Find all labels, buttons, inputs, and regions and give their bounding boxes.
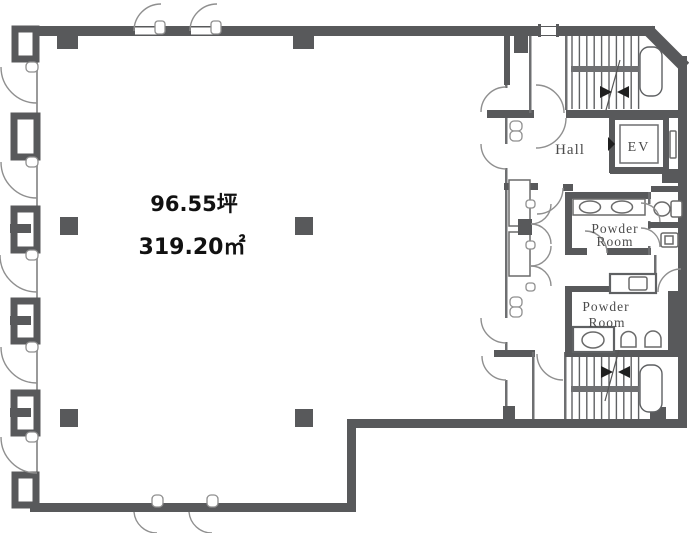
powder-room-lower-label-line1: Powder [582, 299, 629, 314]
door-pivot [26, 157, 38, 167]
door-swing-arc [134, 512, 157, 533]
bottom-facade-doors [134, 495, 218, 533]
wall-pilaster [518, 219, 532, 235]
vestibule-wall [494, 350, 535, 357]
door-pivot [526, 283, 535, 291]
hall-north-wall [487, 110, 534, 118]
door-opening [502, 356, 510, 380]
wall-pilaster [662, 169, 687, 183]
toilet-tank [671, 201, 682, 217]
window-tick [556, 24, 559, 37]
door-pivot [26, 432, 38, 442]
door-pivot [526, 241, 535, 249]
toilet-fixture-inner [665, 236, 673, 244]
corridor-wall [529, 36, 532, 113]
hall-label: Hall [555, 142, 585, 158]
door-pivot [26, 250, 38, 260]
column [60, 409, 78, 427]
counter-sink [629, 277, 647, 290]
wall-segment [503, 406, 515, 423]
area-label-tsubo: 96.55坪 [150, 192, 237, 216]
floor-plan-drawing: 96.55坪 319.20㎡ Hall EV Powder Room Powde… [0, 0, 689, 533]
powder-room-lower-label-line2: Room [588, 315, 625, 330]
area-label-sqm: 319.20㎡ [139, 234, 246, 260]
door-opening [502, 144, 510, 168]
top-window-opening [540, 27, 558, 35]
wall-pilaster [514, 36, 528, 53]
door-swing-arc [189, 512, 212, 533]
wall-segment [565, 286, 572, 355]
duct [670, 131, 676, 158]
facade-bay [15, 475, 36, 505]
outer-wall-top [30, 26, 655, 36]
door-pivot [155, 21, 165, 34]
urinal [621, 332, 636, 348]
door-swing-arc [641, 228, 660, 247]
wall-pilaster [293, 36, 314, 49]
outer-wall-notch [347, 419, 356, 512]
door-pivot [152, 495, 163, 507]
upper-staircase [571, 36, 662, 110]
wall-segment [651, 186, 687, 192]
door-pivot [510, 131, 522, 141]
door-swing-arc [658, 269, 681, 292]
stair-arrow-down [617, 86, 629, 98]
outer-wall-bottom [30, 503, 356, 512]
lower-staircase [565, 350, 687, 419]
column [295, 217, 313, 235]
door-pivot [207, 495, 218, 507]
wall-pilaster [57, 36, 78, 49]
urinal [645, 331, 661, 347]
powder-room-upper-label-line2: Room [596, 234, 633, 249]
door-opening [502, 88, 510, 112]
vestibule-wall [532, 352, 535, 419]
sink-basin [612, 201, 633, 213]
window-tick [538, 24, 541, 37]
floor-plan: 96.55坪 319.20㎡ Hall EV Powder Room Powde… [0, 0, 689, 533]
facade-bay [15, 29, 36, 59]
wall-segment [565, 192, 572, 255]
stall-wall [648, 192, 651, 204]
wall-segment [668, 291, 680, 353]
wall-segment [565, 192, 651, 199]
column [295, 409, 313, 427]
door-swing-arc [537, 354, 563, 380]
facade-bay [14, 116, 37, 157]
stair-west-wall [565, 36, 568, 110]
toilet-bowl [654, 202, 670, 216]
column [60, 217, 78, 235]
elevator-label: EV [628, 140, 651, 155]
wall-segment [565, 248, 587, 255]
wall-segment [607, 248, 651, 255]
wall-segment [610, 168, 669, 174]
stall-wall [654, 255, 657, 273]
door-pivot [26, 62, 38, 72]
sink-basin [582, 332, 604, 348]
stair-landing-edge [571, 386, 639, 392]
door-opening [502, 318, 510, 342]
shaft-closet [509, 232, 530, 276]
vestibule-wall [564, 352, 567, 419]
bay-divider [10, 408, 31, 417]
stall-divider [648, 222, 687, 228]
outer-wall-core-bottom [347, 419, 687, 428]
outer-walls [30, 26, 687, 512]
stall-wall [648, 246, 651, 255]
stair-rail [640, 47, 662, 96]
door-pivot [510, 121, 522, 131]
stair-rail [640, 365, 662, 412]
door-pivot [510, 307, 522, 317]
wall-segment [504, 36, 510, 85]
door-pivot [526, 200, 535, 208]
door-pivot [211, 21, 221, 34]
door-swing-arc [536, 85, 564, 113]
bay-divider [10, 224, 31, 233]
door-pivot [510, 297, 522, 307]
bay-divider [10, 316, 31, 325]
stair-landing-edge [571, 66, 639, 72]
hall-south-wall [563, 184, 573, 191]
door-pivot [26, 342, 38, 352]
sink-basin [580, 201, 601, 213]
